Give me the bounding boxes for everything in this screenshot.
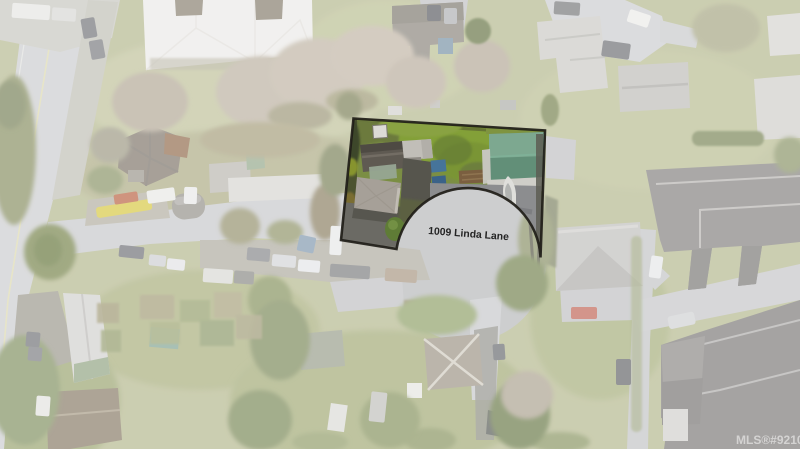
svg-text:MLS®#921077: MLS®#921077 [736, 433, 800, 447]
